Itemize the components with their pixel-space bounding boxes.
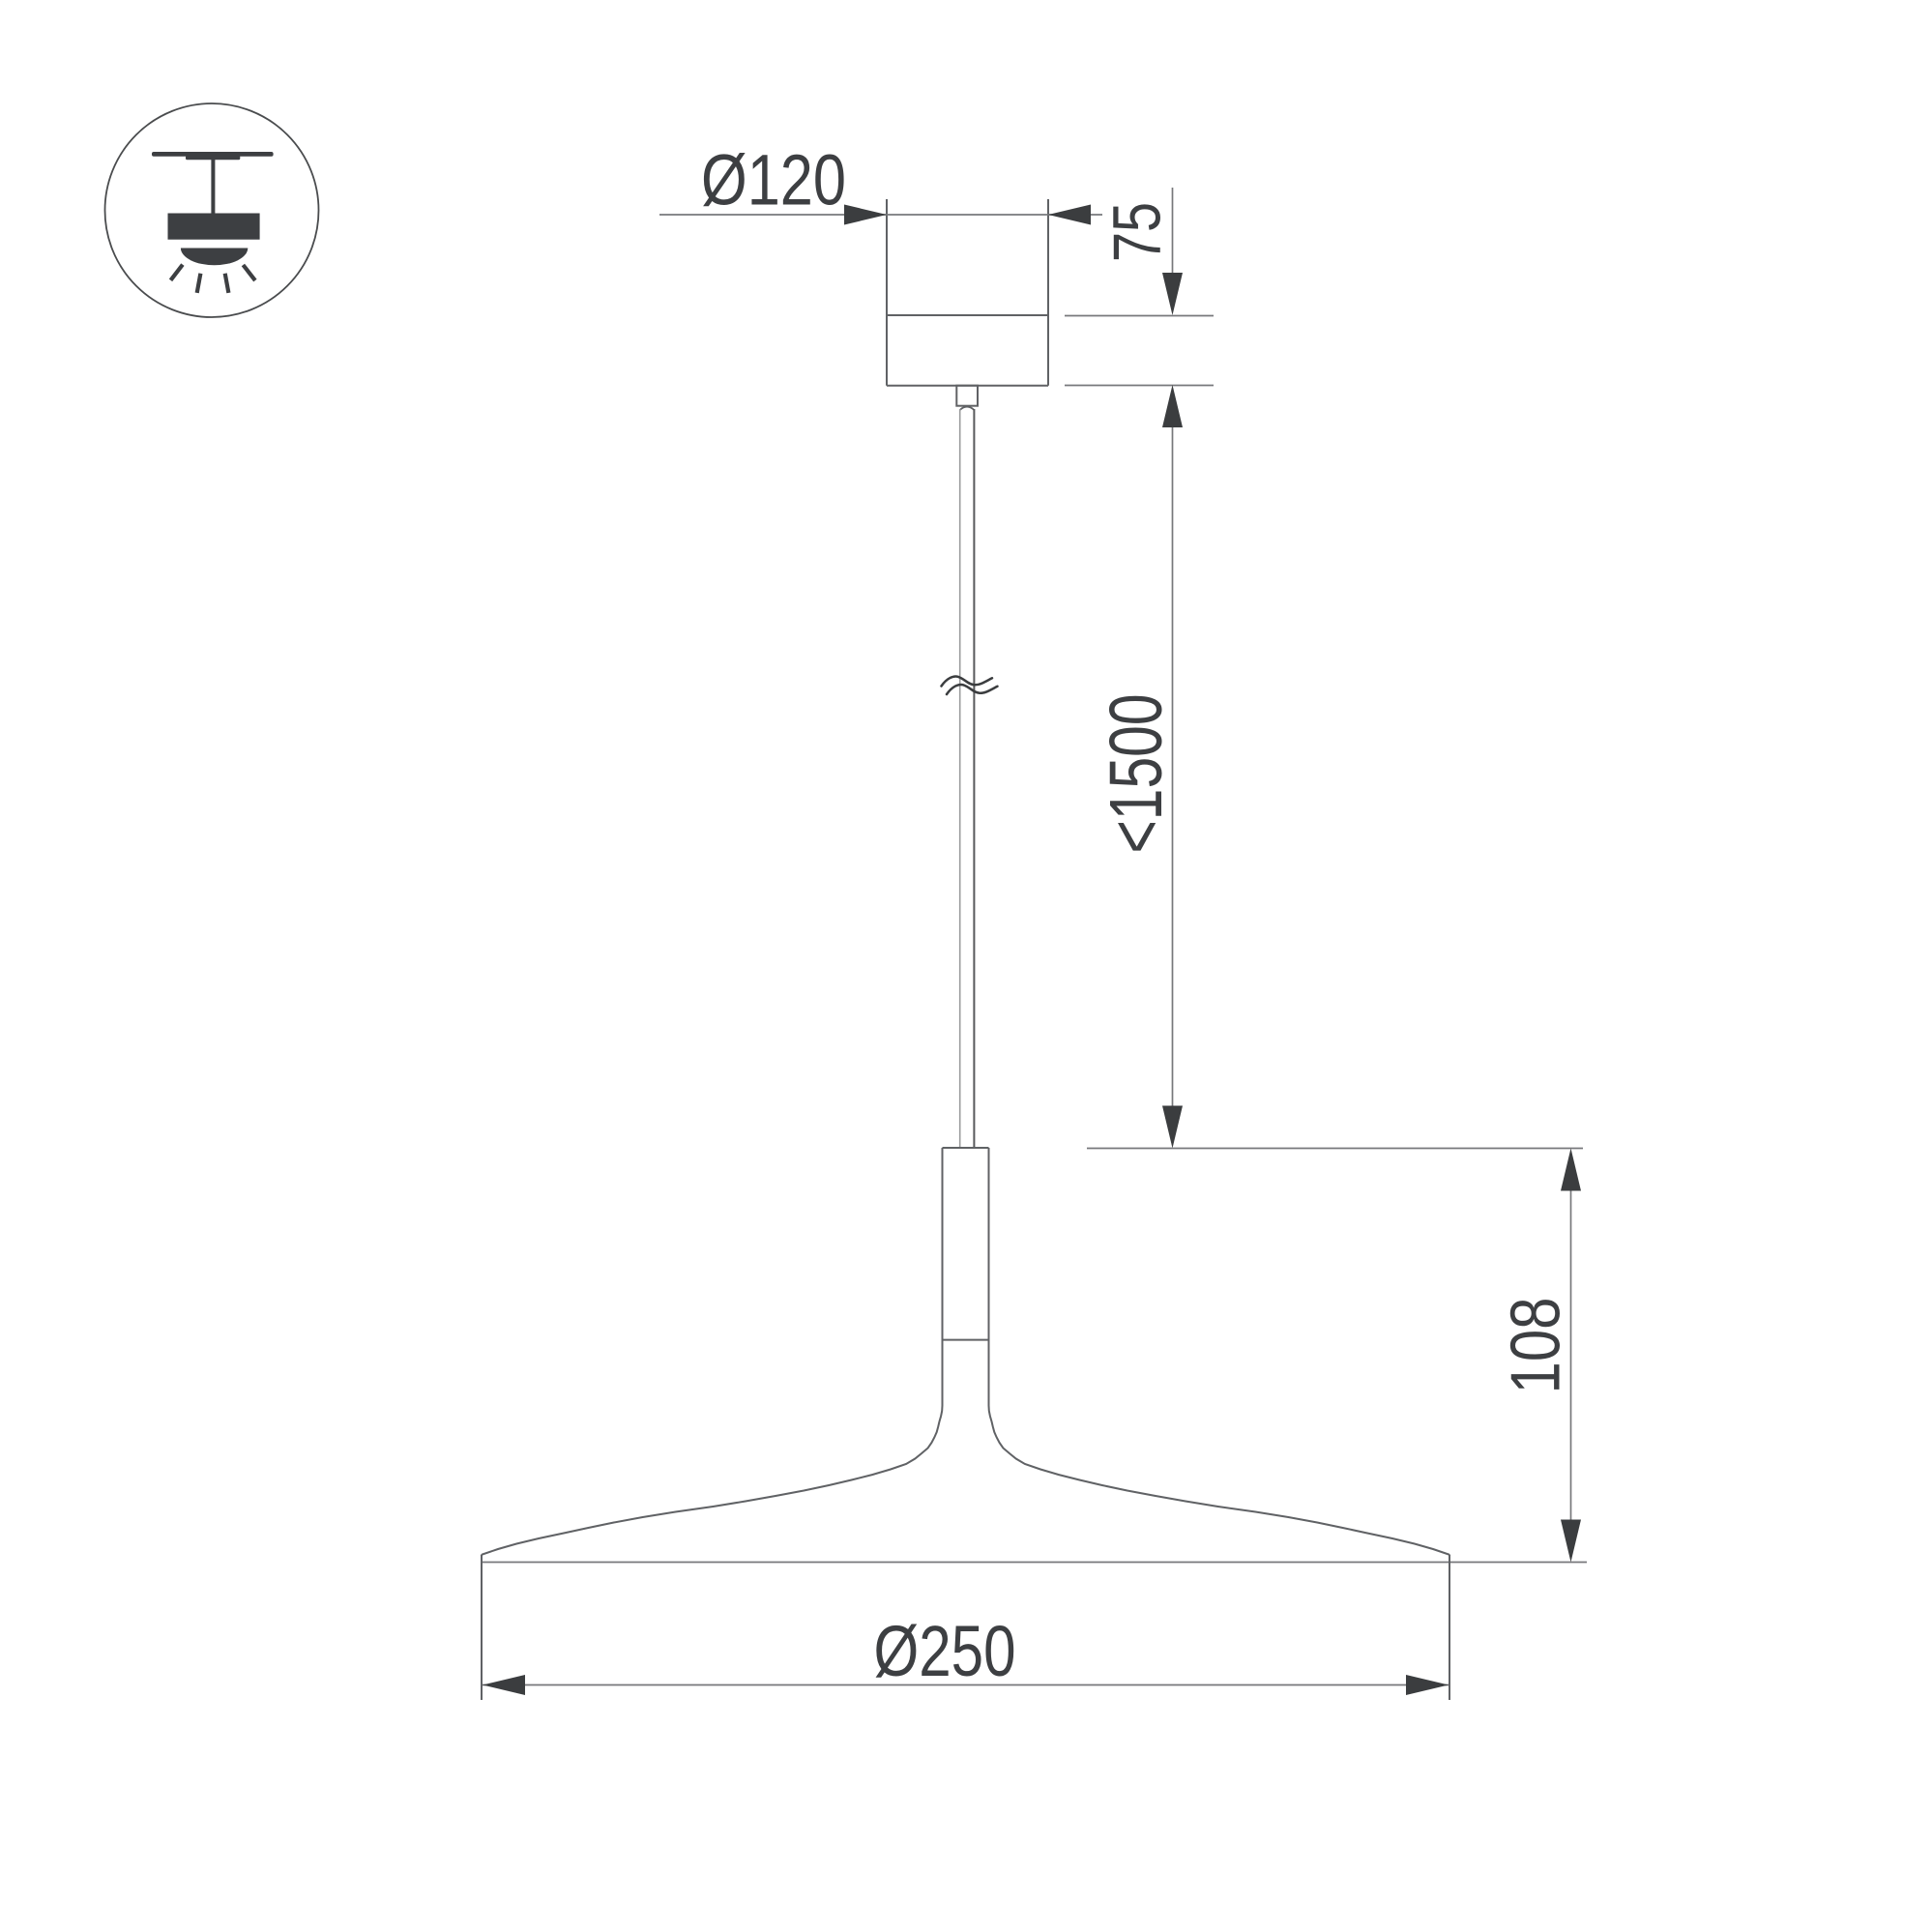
svg-text:<1500: <1500 [1095, 694, 1178, 854]
svg-text:Ø250: Ø250 [874, 1611, 1016, 1691]
svg-text:75: 75 [1099, 202, 1175, 262]
svg-text:108: 108 [1498, 1298, 1575, 1394]
svg-text:Ø120: Ø120 [701, 140, 846, 220]
